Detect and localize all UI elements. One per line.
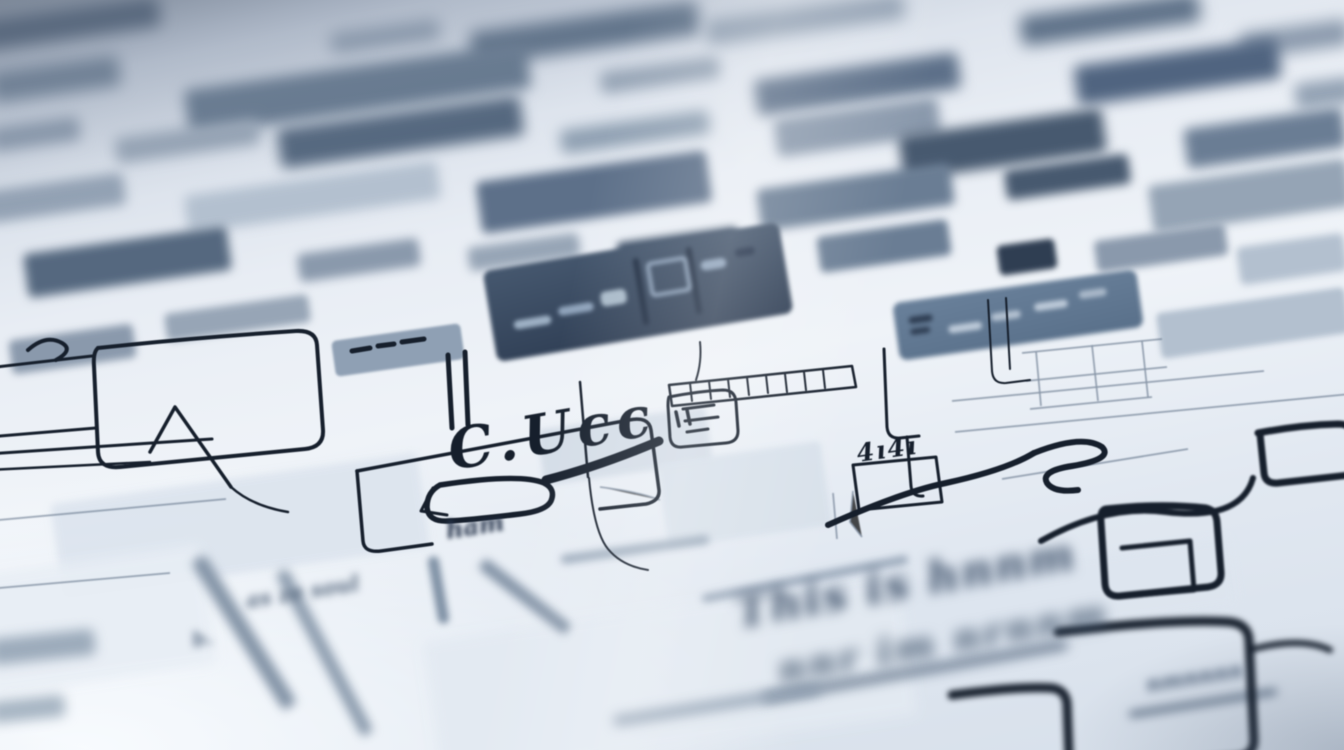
list-dash xyxy=(687,429,708,432)
ruler-tick xyxy=(804,372,806,390)
right-hook-box xyxy=(1258,424,1344,480)
up-arrow xyxy=(150,407,231,487)
ruler-tick xyxy=(728,379,730,397)
right-hook-box xyxy=(1260,434,1344,483)
elbow-connector xyxy=(992,371,1030,383)
main-scribble-text: C.Ucc xyxy=(443,382,661,483)
blurred-arc xyxy=(1250,643,1330,650)
thick-box-outline xyxy=(1101,506,1221,596)
left-rule-line xyxy=(0,439,212,454)
double-mark xyxy=(676,412,679,426)
blurred-rounded-box xyxy=(952,688,1070,750)
tag-scribble-stroke xyxy=(352,348,370,351)
left-rule-line xyxy=(0,428,96,437)
ruler-tick xyxy=(690,383,692,401)
vertical-pair-line xyxy=(988,300,992,371)
vertical-pair-line xyxy=(1006,298,1010,369)
ruler-tick xyxy=(766,375,768,393)
toolbar-drop-line xyxy=(696,342,701,380)
loop-connector xyxy=(1034,442,1105,491)
curl-scribble xyxy=(28,340,67,360)
semi-focused-thick-boxes xyxy=(1041,424,1344,596)
left-entry-line xyxy=(0,356,92,368)
ruler-tick xyxy=(709,381,711,399)
photo-of-flowchart-sketch: C.Ucc 4ı4ı ham as ze soul b. This is hnn… xyxy=(0,0,1344,750)
ruler-tick xyxy=(747,377,749,395)
sharp-ink-elements: C.Ucc 4ı4ı xyxy=(0,298,1105,570)
ruler-tick xyxy=(785,374,787,392)
scribble-word: b. xyxy=(190,625,214,652)
hairline-connectors xyxy=(0,339,1344,589)
left-box-outline xyxy=(94,331,323,467)
arrow-tail-line xyxy=(231,487,288,512)
ruler-box xyxy=(669,366,856,406)
tag-scribble-stroke xyxy=(378,344,394,346)
tag-scribble-stroke xyxy=(402,339,424,342)
ruler-tick xyxy=(823,370,825,388)
elbow-connector xyxy=(884,349,919,438)
drop-line xyxy=(589,478,648,570)
